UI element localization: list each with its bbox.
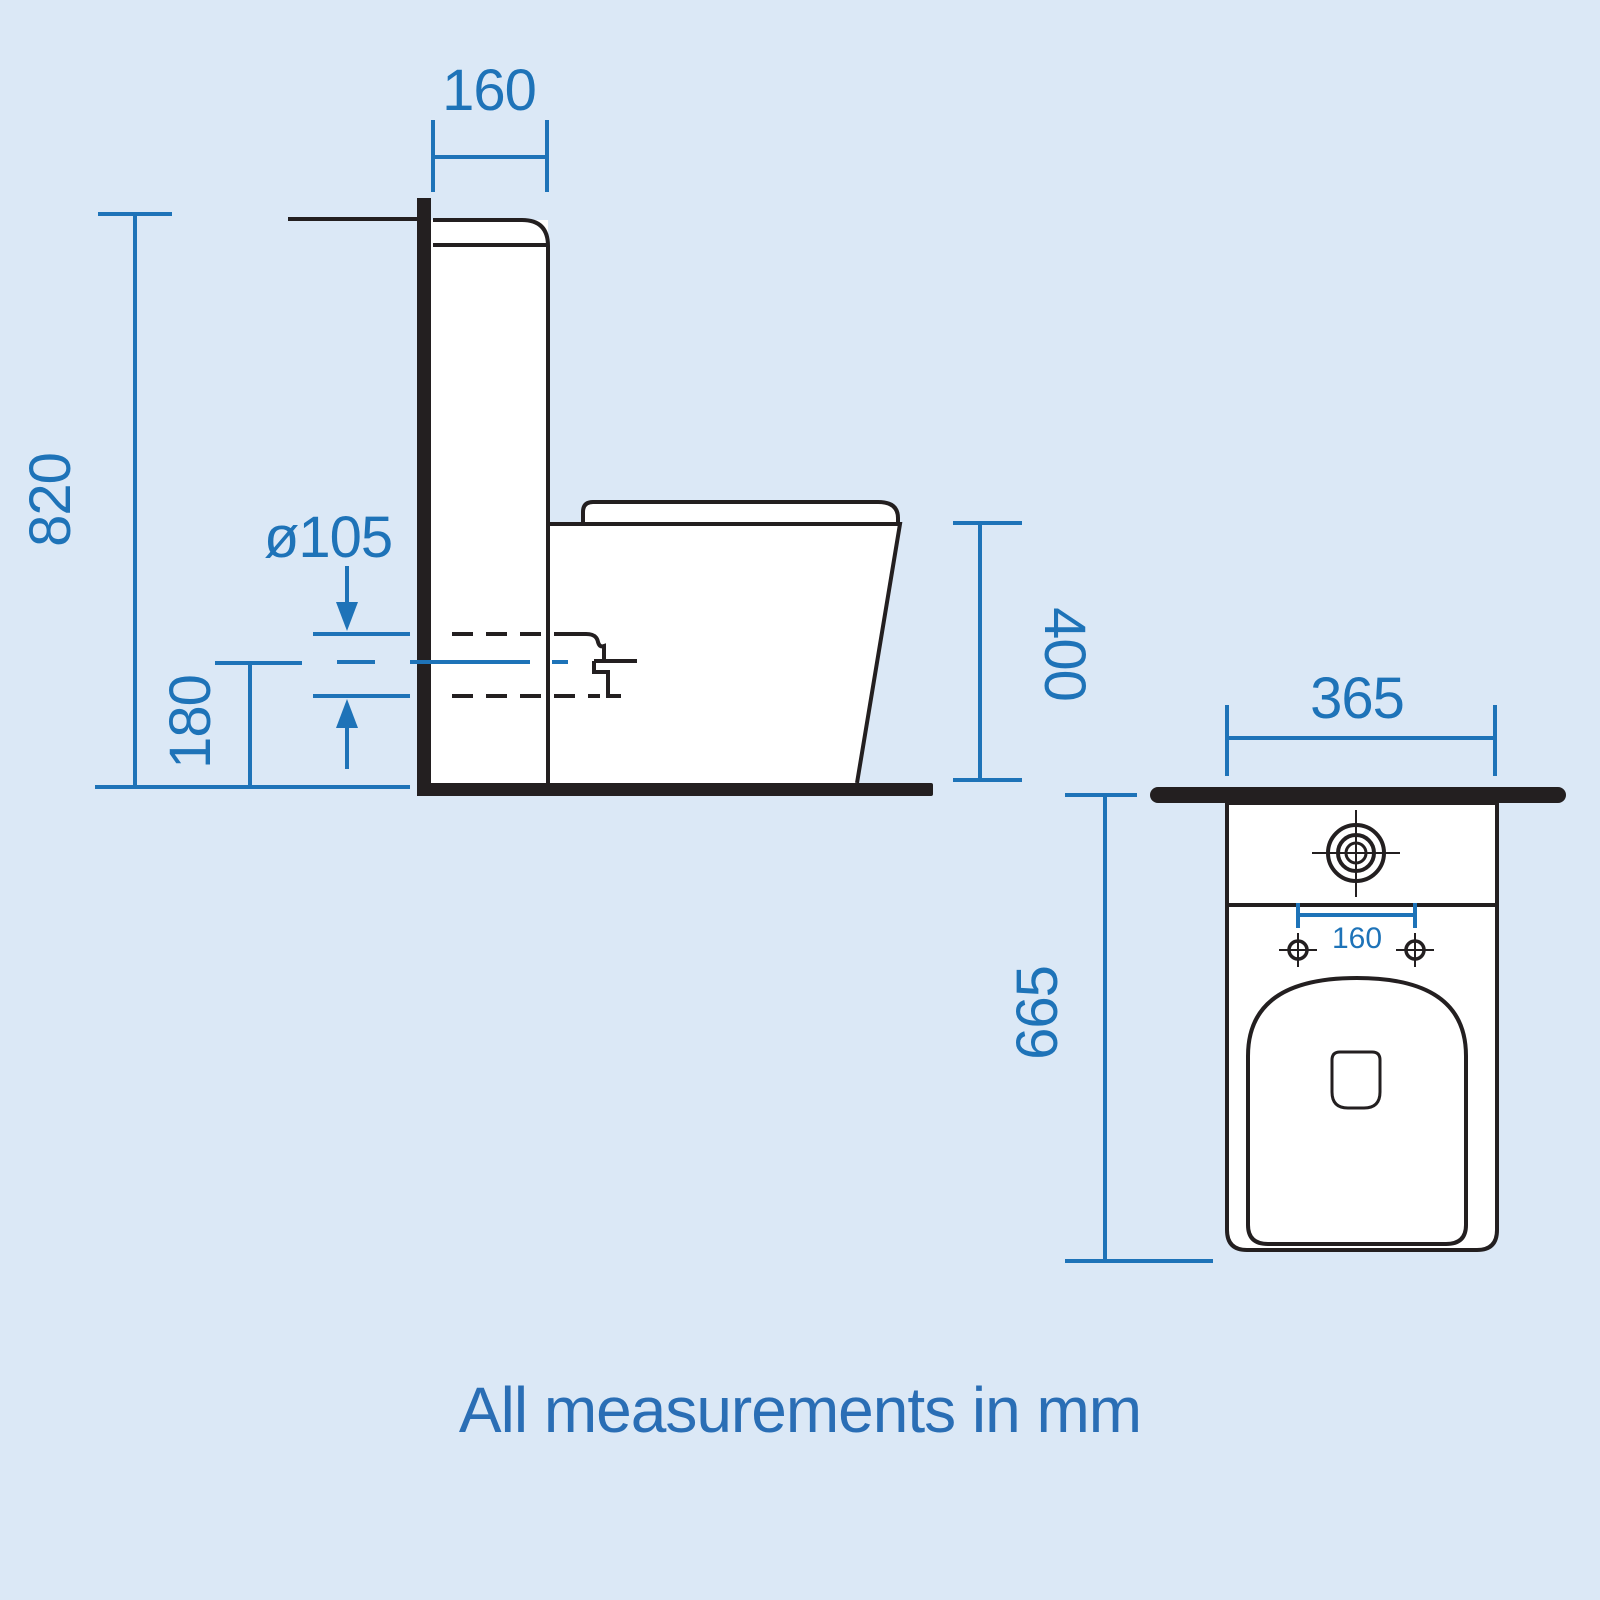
dim-pan-height: 400 xyxy=(953,523,1097,780)
dim-label-pan-width: 365 xyxy=(1310,666,1404,731)
units-note: All measurements in mm xyxy=(459,1374,1141,1446)
dim-label-outlet-centre-height: 180 xyxy=(158,675,223,769)
arrowhead-down-icon xyxy=(336,602,358,631)
dim-label-pan-depth: 665 xyxy=(1005,966,1070,1060)
wall-line xyxy=(417,198,431,796)
seat-profile xyxy=(583,502,898,524)
dim-outlet-centre-height: 180 xyxy=(158,663,302,787)
side-view: 160 820 ø105 180 xyxy=(18,58,1097,796)
dim-cistern-depth: 160 xyxy=(433,58,547,192)
dim-label-cistern-depth: 160 xyxy=(442,58,536,123)
plan-view: 160 365 665 xyxy=(1005,666,1566,1261)
dim-pan-depth: 665 xyxy=(1005,795,1213,1261)
floor-line xyxy=(417,783,933,796)
arrowhead-up-icon xyxy=(336,699,358,728)
toilet-dimension-diagram: 160 820 ø105 180 xyxy=(0,0,1600,1600)
plan-wall-line xyxy=(1150,787,1566,803)
dim-outlet-diameter: ø105 xyxy=(264,505,410,769)
technical-drawing-canvas: 160 820 ø105 180 xyxy=(0,0,1600,1600)
dim-pan-width: 365 xyxy=(1227,666,1495,776)
cistern-fill xyxy=(431,220,548,783)
dim-label-outlet-diameter: ø105 xyxy=(264,505,392,570)
dim-label-total-height: 820 xyxy=(18,453,83,547)
dim-label-pan-height: 400 xyxy=(1032,607,1097,701)
dim-label-fixing-centres: 160 xyxy=(1332,922,1382,955)
pan-fill xyxy=(548,524,900,783)
